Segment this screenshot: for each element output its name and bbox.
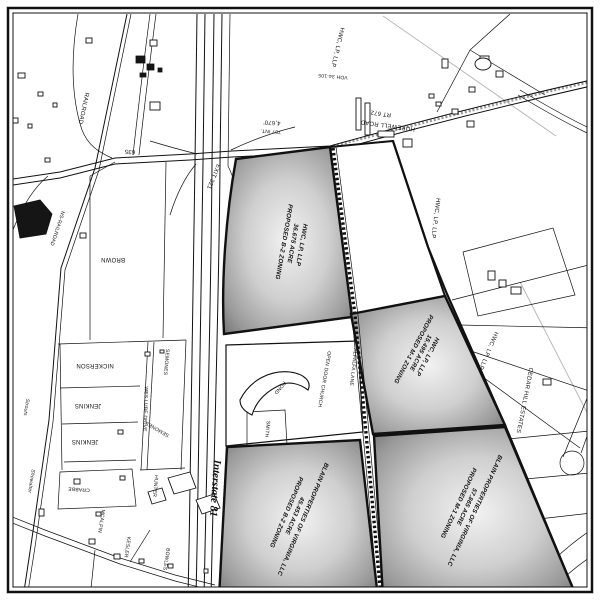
- owner-jenkins-1: JENKINS: [75, 402, 102, 408]
- rezoning-plat-map: HWC, LP, LLP 36.675 ACRE PROPOSED B-2 ZO…: [0, 0, 600, 600]
- parcel-blain-b2: [219, 440, 378, 598]
- owner-jenkins-2: JENKINS: [72, 438, 99, 444]
- owner-nickerson: NICKERSON: [76, 362, 113, 368]
- route-635-label: 635: [124, 148, 135, 155]
- owner-brown: BROWN: [101, 256, 125, 262]
- distance-annotation: 4,670': [263, 118, 281, 125]
